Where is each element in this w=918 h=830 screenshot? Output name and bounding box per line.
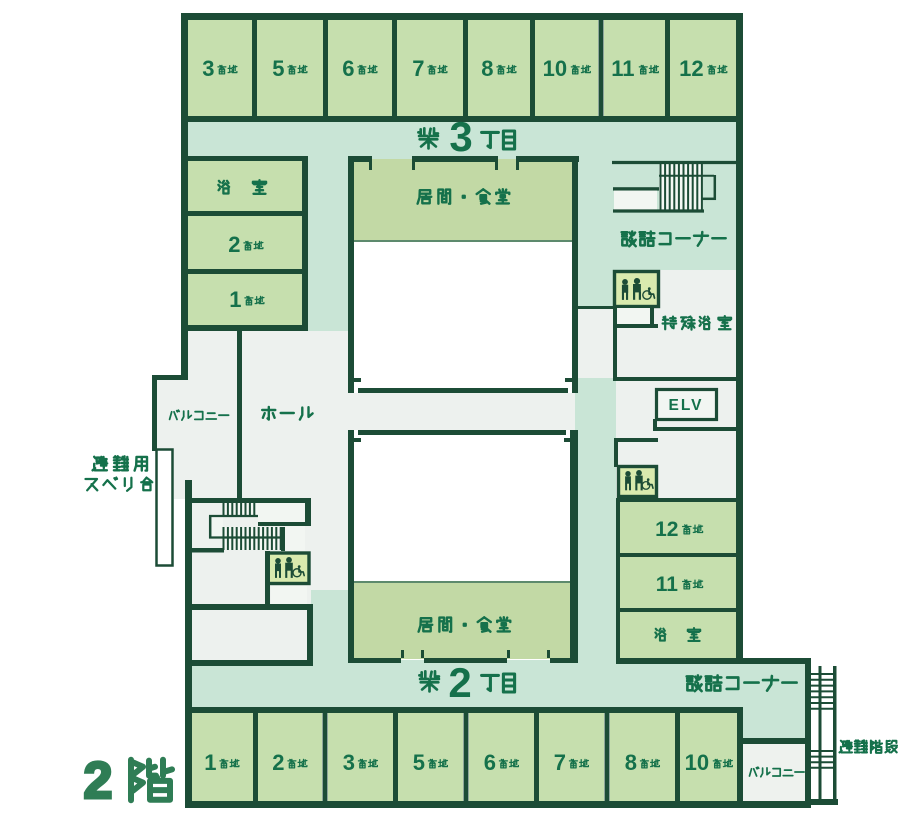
svg-text:11: 11 [656, 573, 679, 596]
svg-text:2: 2 [84, 752, 113, 810]
svg-text:7: 7 [412, 56, 424, 81]
svg-text:8: 8 [625, 750, 637, 775]
svg-text:5: 5 [272, 56, 284, 81]
svg-text:1: 1 [204, 750, 216, 775]
svg-text:8: 8 [481, 56, 493, 81]
svg-text:2: 2 [228, 232, 240, 257]
svg-text:5: 5 [413, 750, 425, 775]
svg-text:2: 2 [448, 659, 471, 706]
svg-text:6: 6 [342, 56, 354, 81]
svg-text:6: 6 [484, 750, 496, 775]
svg-text:3: 3 [449, 113, 472, 160]
svg-text:12: 12 [679, 56, 703, 81]
svg-text:11: 11 [611, 56, 634, 81]
svg-text:7: 7 [554, 750, 566, 775]
svg-text:3: 3 [202, 56, 214, 81]
svg-text:3: 3 [343, 750, 355, 775]
svg-text:ELV: ELV [669, 397, 704, 414]
svg-text:10: 10 [543, 56, 567, 81]
svg-text:1: 1 [229, 287, 241, 312]
svg-text:12: 12 [655, 518, 678, 541]
svg-text:2: 2 [272, 750, 284, 775]
svg-text:10: 10 [685, 750, 709, 775]
